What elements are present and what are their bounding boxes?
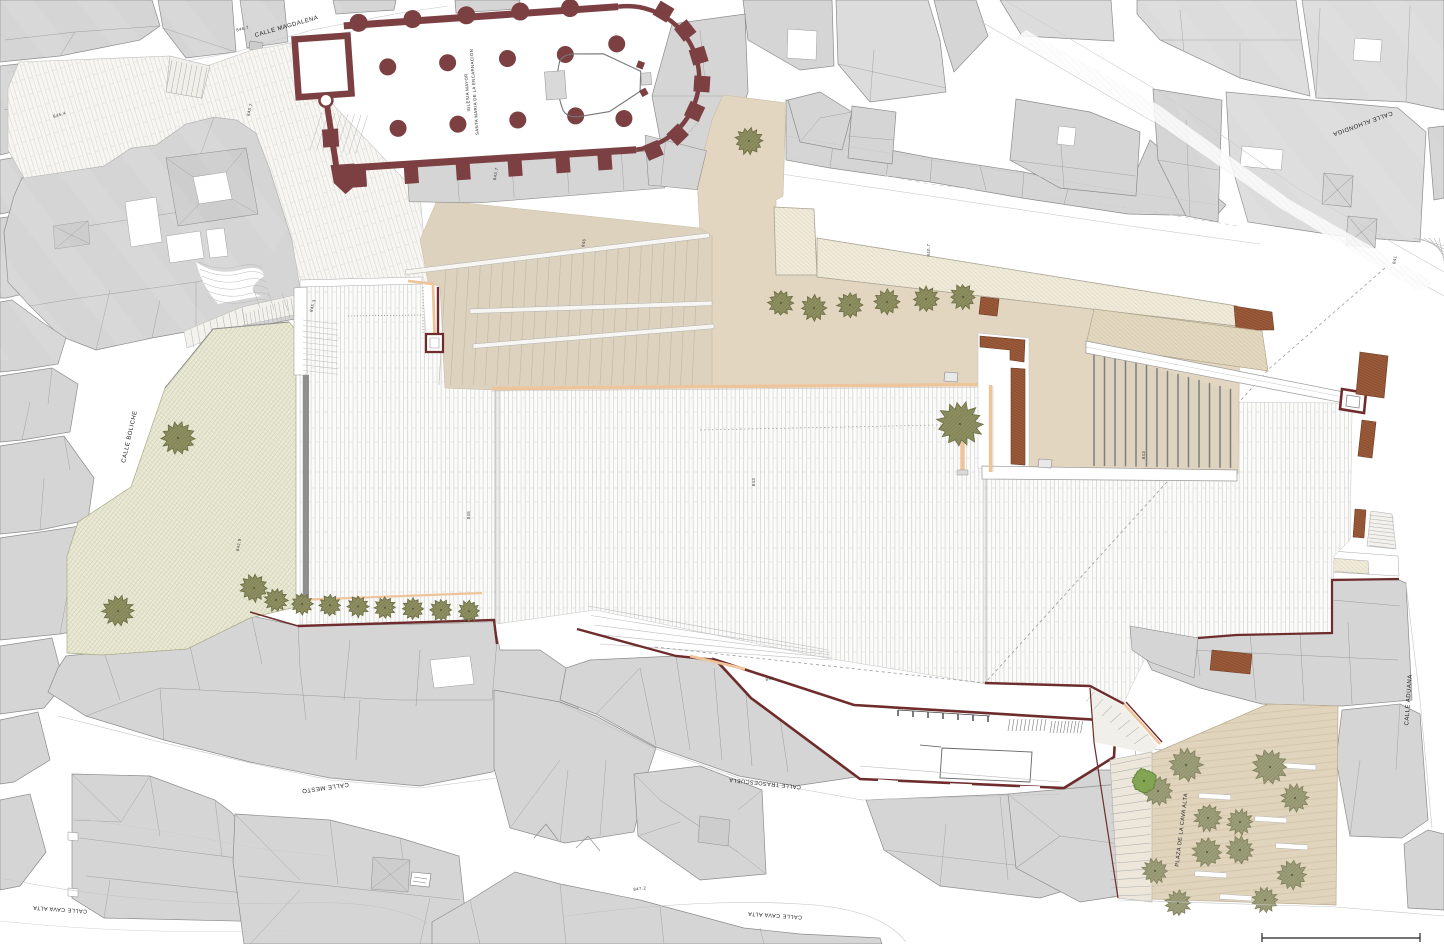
svg-text:840.7: 840.7 [926, 243, 931, 256]
svg-text:845: 845 [466, 511, 471, 520]
svg-text:843: 843 [751, 478, 756, 487]
svg-text:843: 843 [1141, 451, 1146, 460]
